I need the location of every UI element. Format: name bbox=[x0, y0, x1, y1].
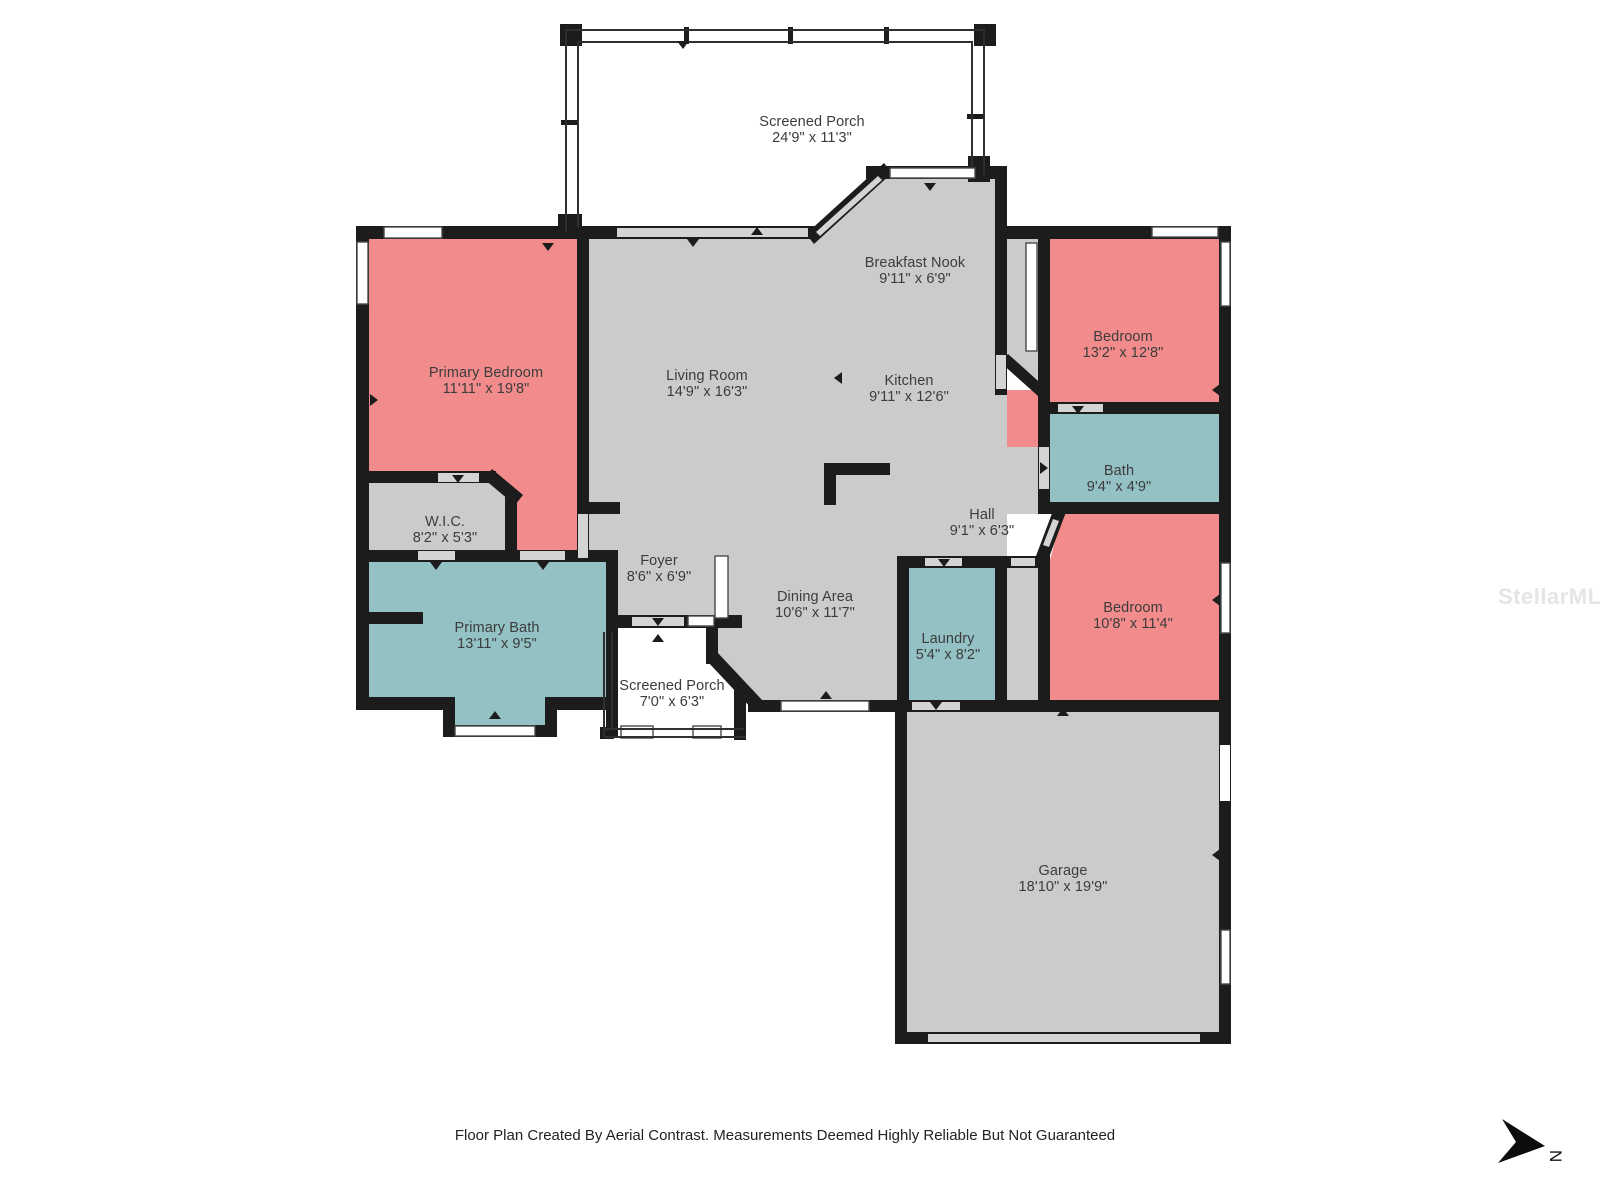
watermark-stellar-mls: StellarMLS bbox=[1498, 584, 1600, 610]
window-primary-bedroom-top bbox=[384, 227, 442, 238]
window-bedroom-2-right bbox=[1221, 563, 1230, 633]
room-label-bedroom-2: Bedroom 10'8" x 11'4" bbox=[1093, 600, 1173, 632]
room-label-foyer: Foyer 8'6" x 6'9" bbox=[627, 553, 692, 585]
front-door-leaf bbox=[715, 556, 728, 618]
window-breakfast-nook bbox=[890, 168, 975, 178]
room-label-screened-porch-small: Screened Porch 7'0" x 6'3" bbox=[619, 678, 724, 710]
room-label-primary-bedroom: Primary Bedroom 11'11" x 19'8" bbox=[429, 365, 543, 397]
window-garage-right bbox=[1221, 930, 1230, 984]
window-foyer-sidelight bbox=[688, 616, 714, 626]
window-primary-bedroom-left bbox=[357, 242, 368, 304]
room-label-living-room: Living Room 14'9" x 16'3" bbox=[666, 368, 748, 400]
closet-doors-bedroom-1 bbox=[1026, 243, 1037, 351]
room-label-hall: Hall 9'1" x 6'3" bbox=[950, 507, 1015, 539]
room-label-laundry: Laundry 5'4" x 8'2" bbox=[916, 631, 981, 663]
room-label-primary-bath: Primary Bath 13'11" x 9'5" bbox=[455, 620, 540, 652]
door-gap-garage-right bbox=[1220, 745, 1230, 801]
room-fill-bedroom-1 bbox=[1038, 239, 1225, 408]
window-bedroom-1-top bbox=[1152, 227, 1218, 237]
room-label-kitchen: Kitchen 9'11" x 12'6" bbox=[869, 373, 949, 405]
window-dining bbox=[781, 701, 869, 711]
window-bedroom-1-right bbox=[1221, 242, 1230, 306]
room-fill-hall-closet-strip bbox=[1007, 556, 1043, 712]
footer-disclaimer: Floor Plan Created By Aerial Contrast. M… bbox=[0, 1127, 1570, 1144]
room-label-breakfast-nook: Breakfast Nook 9'11" x 6'9" bbox=[865, 255, 966, 287]
window-primary-bath-bay bbox=[455, 726, 535, 736]
room-label-bath: Bath 9'4" x 4'9" bbox=[1087, 463, 1152, 495]
floor-plan-canvas: N Screened Porch 24'9" x 11'3" Primary B… bbox=[0, 0, 1600, 1200]
room-label-screened-porch-top: Screened Porch 24'9" x 11'3" bbox=[759, 114, 864, 146]
room-label-wic: W.I.C. 8'2" x 5'3" bbox=[413, 514, 478, 546]
room-label-dining-area: Dining Area 10'6" x 11'7" bbox=[775, 589, 855, 621]
room-label-garage: Garage 18'10" x 19'9" bbox=[1019, 863, 1108, 895]
north-arrow-label: N bbox=[1546, 1150, 1565, 1162]
room-label-bedroom-1: Bedroom 13'2" x 12'8" bbox=[1083, 329, 1164, 361]
